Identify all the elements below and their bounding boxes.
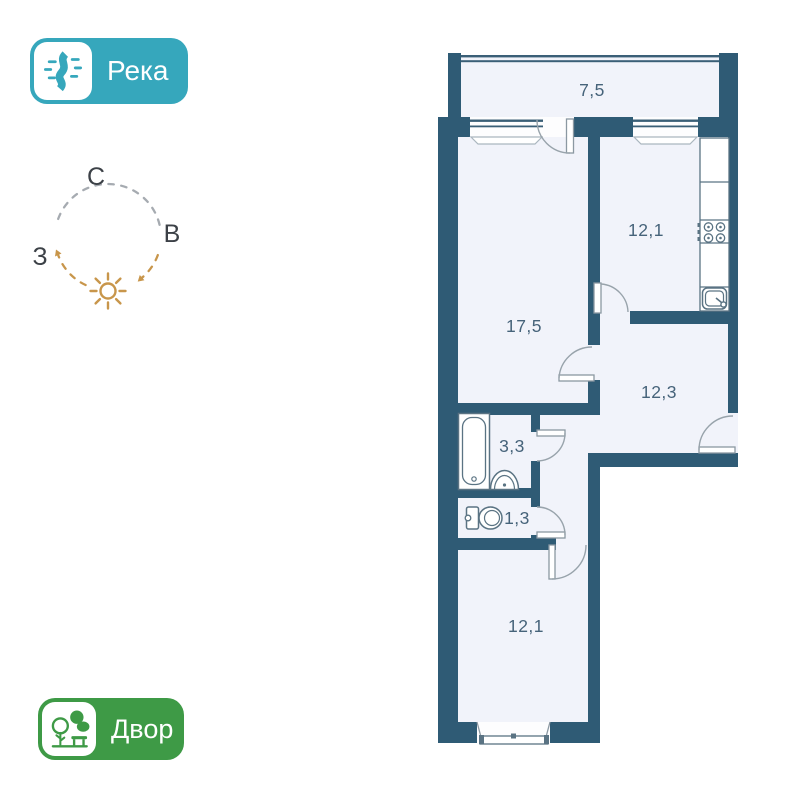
compass-north-label: С <box>87 163 105 191</box>
compass-west-label: З <box>32 243 47 271</box>
bedroom-window <box>477 722 550 744</box>
compass-arc-east <box>142 255 158 278</box>
compass: С В З <box>32 163 180 309</box>
area-label-bathroom: 3,3 <box>499 436 525 456</box>
kitchen-window <box>633 117 698 144</box>
compass-circle-gray <box>58 184 160 228</box>
compass-east-label: В <box>164 220 181 248</box>
floor-plan: 7,5 17,5 12,1 12,3 3,3 1,3 12,1 С В З <box>0 0 800 800</box>
area-label-hallway: 12,3 <box>641 382 677 402</box>
river-icon <box>34 42 92 100</box>
trees-bench-icon <box>42 702 96 756</box>
kitchen-sink-icon <box>703 288 727 309</box>
area-label-bedroom: 12,1 <box>508 616 544 636</box>
yard-badge-label: Двор <box>111 714 173 745</box>
sun-icon <box>91 274 126 309</box>
toilet-icon <box>465 507 502 529</box>
area-label-toilet: 1,3 <box>504 508 530 528</box>
yard-badge: Двор <box>38 698 184 760</box>
area-label-balcony: 7,5 <box>579 80 605 100</box>
river-badge: Река <box>30 38 188 104</box>
area-label-living-room: 17,5 <box>506 316 542 336</box>
compass-arc-west <box>58 255 85 285</box>
living-room-window <box>470 117 543 144</box>
area-label-kitchen: 12,1 <box>628 220 664 240</box>
river-badge-label: Река <box>107 55 168 87</box>
bathtub-icon <box>459 414 490 490</box>
